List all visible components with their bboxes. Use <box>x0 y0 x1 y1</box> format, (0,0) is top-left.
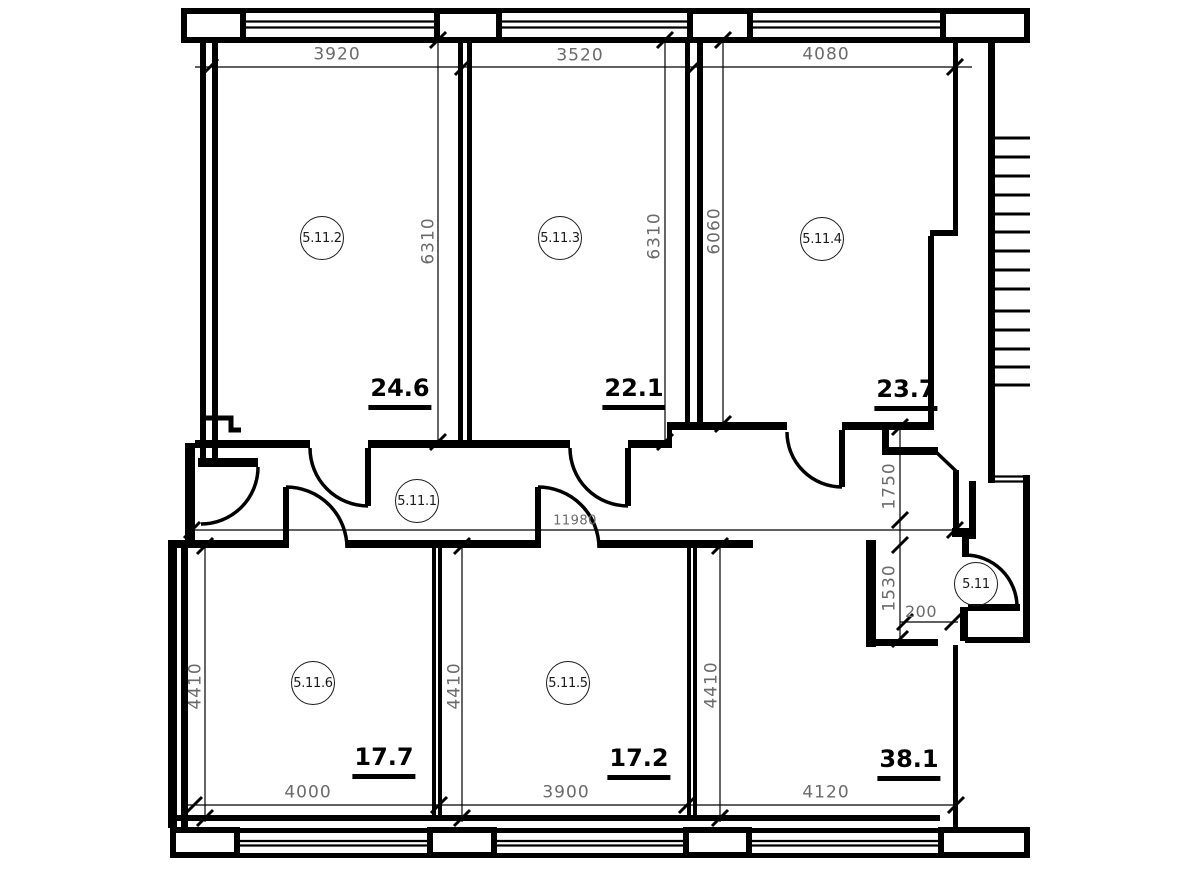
pier <box>437 11 499 40</box>
pier <box>943 11 1027 40</box>
dim-top-width-2: 3520 <box>556 48 603 65</box>
dim-right-200: 200 <box>905 604 937 620</box>
door-swing-arc <box>787 432 842 487</box>
window-glazing-bottom <box>240 841 938 846</box>
room-area-5-11-5: 17.2 <box>607 744 670 780</box>
dim-bottom-width-2: 3900 <box>542 785 589 802</box>
room-tag-label: 5.11.1 <box>397 494 437 509</box>
room-area-5-11-2: 24.6 <box>368 374 431 410</box>
door-swing-arc <box>201 467 258 524</box>
dim-right-1750: 1750 <box>882 462 899 509</box>
room-tag-label: 5.11.6 <box>293 676 333 691</box>
left-exterior-wall <box>168 43 218 828</box>
room-area-hall: 38.1 <box>877 745 940 781</box>
room-tag-5-11: 5.11 <box>954 562 998 606</box>
room-tag-5-11-2: 5.11.2 <box>300 216 344 260</box>
stair-treads <box>995 138 1030 385</box>
pier <box>941 830 1027 855</box>
dim-corridor-length: 11980 <box>553 515 597 528</box>
dim-lower-depth-2: 4410 <box>447 662 464 709</box>
dim-top-width-3: 4080 <box>802 47 849 64</box>
room-tag-5-11-6: 5.11.6 <box>291 661 335 705</box>
door-leaf <box>283 487 289 548</box>
room-tag-5-11-1: 5.11.1 <box>395 479 439 523</box>
dim-top-width-1: 3920 <box>313 47 360 64</box>
bottom-exterior-wall <box>173 815 1027 858</box>
pier <box>173 830 237 855</box>
stairwell <box>988 43 1030 483</box>
room-tag-label: 5.11.3 <box>540 231 580 246</box>
room-tag-5-11-4: 5.11.4 <box>800 217 844 261</box>
room-area-5-11-4: 23.7 <box>874 375 937 411</box>
room-tag-label: 5.11.5 <box>548 676 588 691</box>
window-glazing-top <box>246 22 940 28</box>
dim-bottom-width-3: 4120 <box>802 785 849 802</box>
door-leaf <box>625 448 631 506</box>
interior-walls <box>168 43 1030 829</box>
door-leaf <box>839 430 845 487</box>
dim-lower-depth-1: 4410 <box>188 662 205 709</box>
room-tag-label: 5.11.4 <box>802 232 842 247</box>
door-leaf <box>198 458 258 467</box>
dim-right-1530: 1530 <box>882 564 899 611</box>
dim-lower-depth-3: 4410 <box>704 661 721 708</box>
room-tag-5-11-5: 5.11.5 <box>546 661 590 705</box>
wall-step <box>206 418 241 430</box>
dim-room-depth-1: 6310 <box>421 217 438 264</box>
room-tag-label: 5.11.2 <box>302 231 342 246</box>
room-area-5-11-6: 17.7 <box>352 743 415 779</box>
top-exterior-wall <box>184 8 1030 43</box>
floor-plan-linework <box>0 0 1200 871</box>
pier <box>184 11 243 40</box>
diagonal-wall <box>936 452 956 471</box>
pier <box>430 830 494 855</box>
room-area-5-11-3: 22.1 <box>602 374 665 410</box>
dim-room-depth-3: 6060 <box>707 207 724 254</box>
door-leaf <box>535 487 541 548</box>
pier <box>686 830 749 855</box>
door-swing-arc <box>570 448 628 506</box>
door-leaf <box>365 448 371 506</box>
room-tag-label: 5.11 <box>962 577 990 592</box>
dim-bottom-width-1: 4000 <box>284 785 331 802</box>
floor-plan: 3920 3520 4080 6310 6310 6060 11980 1750… <box>0 0 1200 871</box>
dim-room-depth-2: 6310 <box>647 212 664 259</box>
room-tag-5-11-3: 5.11.3 <box>538 216 582 260</box>
pier <box>690 11 750 40</box>
